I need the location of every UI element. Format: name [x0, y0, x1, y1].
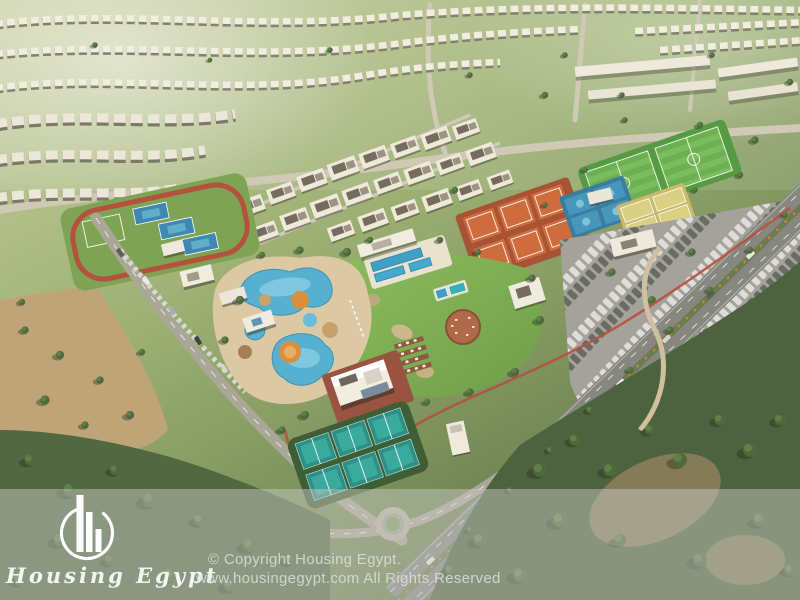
splash-pad: [291, 291, 309, 309]
brand-name: Housing Egypt: [6, 563, 174, 588]
watermark-bar: Housing Egypt © Copyright Housing Egypt.…: [0, 489, 800, 600]
buildings-in-circle-icon: [56, 488, 118, 562]
copyright-notice: © Copyright Housing Egypt. www.housingeg…: [196, 551, 501, 588]
copyright-line1: © Copyright Housing Egypt.: [208, 551, 501, 570]
copyright-line2: www.housingegypt.com All Rights Reserved: [196, 570, 501, 589]
aerial-render: Housing Egypt © Copyright Housing Egypt.…: [0, 0, 800, 600]
outdoor-seating-plaza: [446, 310, 480, 344]
